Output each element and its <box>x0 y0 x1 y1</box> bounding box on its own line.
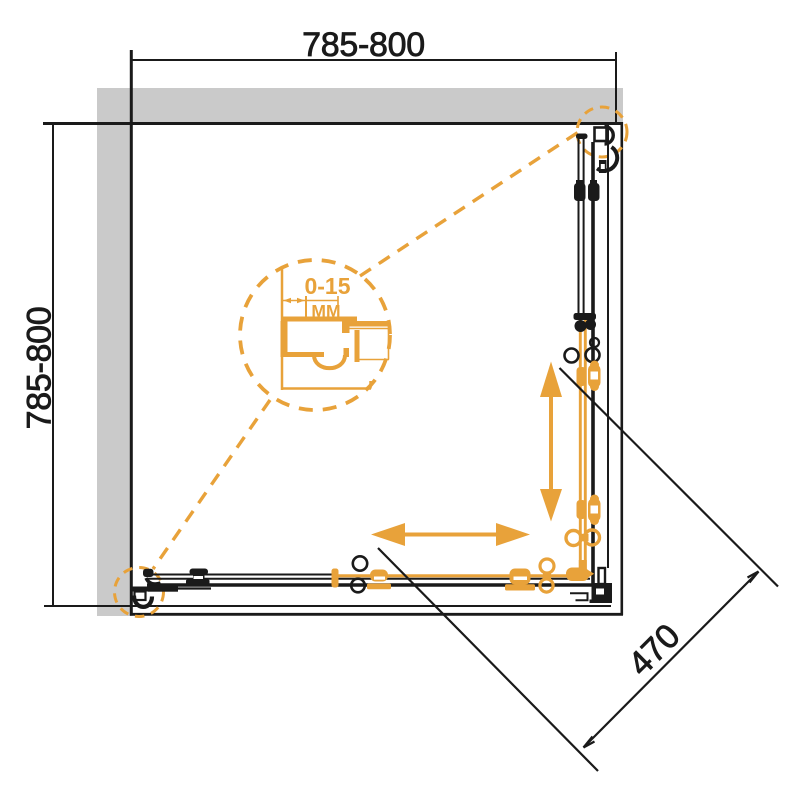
svg-text:785-800: 785-800 <box>21 307 59 430</box>
svg-text:785-800: 785-800 <box>302 26 425 64</box>
svg-text:MM: MM <box>311 301 340 321</box>
svg-text:0-15: 0-15 <box>304 273 350 299</box>
